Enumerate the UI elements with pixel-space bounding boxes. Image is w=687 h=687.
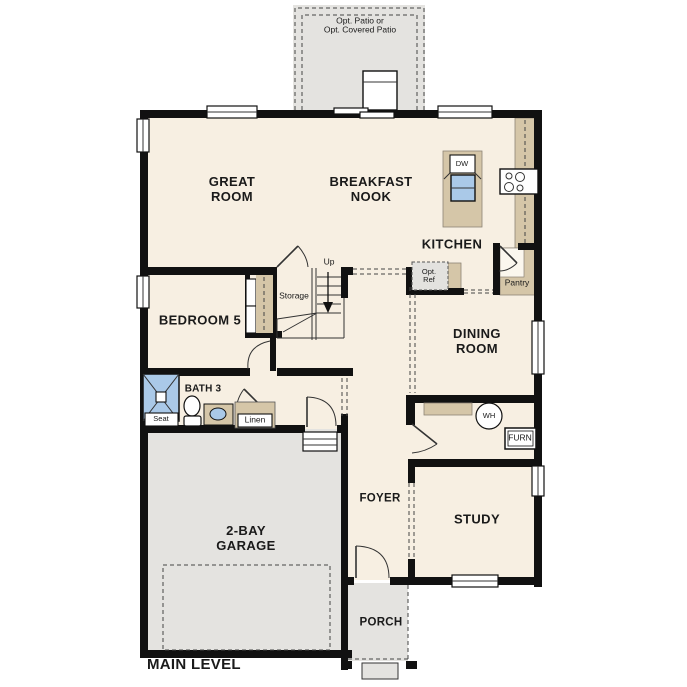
garage-step [303, 432, 337, 451]
bedroom5-closet-doors [246, 275, 273, 333]
ref-cabinet [448, 263, 461, 291]
plan-drawing [0, 0, 687, 687]
coat-closet-shelf [424, 403, 472, 415]
fireplace [363, 71, 397, 110]
range [500, 169, 538, 194]
floor-plan: Opt. Patio or Opt. Covered Patio GREAT R… [0, 0, 687, 687]
patio-label: Opt. Patio or Opt. Covered Patio [324, 17, 396, 36]
furnace-label: FURN [508, 433, 532, 442]
vanity [204, 404, 233, 425]
bath3-label: BATH 3 [185, 383, 222, 395]
kitchen-sink [451, 175, 475, 201]
opt-ref-label: Opt. Ref [422, 268, 436, 284]
toilet [184, 396, 201, 426]
dishwasher-label: DW [456, 160, 469, 168]
porch-step [362, 663, 398, 679]
bedroom5-label: BEDROOM 5 [159, 314, 241, 329]
foyer-label: FOYER [359, 492, 400, 505]
dining-room-label: DINING ROOM [453, 327, 501, 357]
storage-label: Storage [279, 291, 309, 300]
porch-label: PORCH [359, 616, 402, 629]
sliding-door-panel [360, 112, 394, 118]
kitchen-label: KITCHEN [422, 238, 483, 253]
breakfast-nook-label: BREAKFAST NOOK [329, 175, 412, 205]
up-label: Up [324, 257, 335, 266]
garage-label: 2-BAY GARAGE [216, 524, 275, 554]
water-heater-label: WH [483, 412, 496, 420]
study-label: STUDY [454, 513, 500, 528]
great-room-label: GREAT ROOM [209, 175, 256, 205]
pantry-label: Pantry [505, 278, 530, 287]
main-level-label: MAIN LEVEL [147, 656, 241, 673]
linen-label: Linen [245, 415, 266, 424]
seat-label: Seat [153, 415, 168, 423]
